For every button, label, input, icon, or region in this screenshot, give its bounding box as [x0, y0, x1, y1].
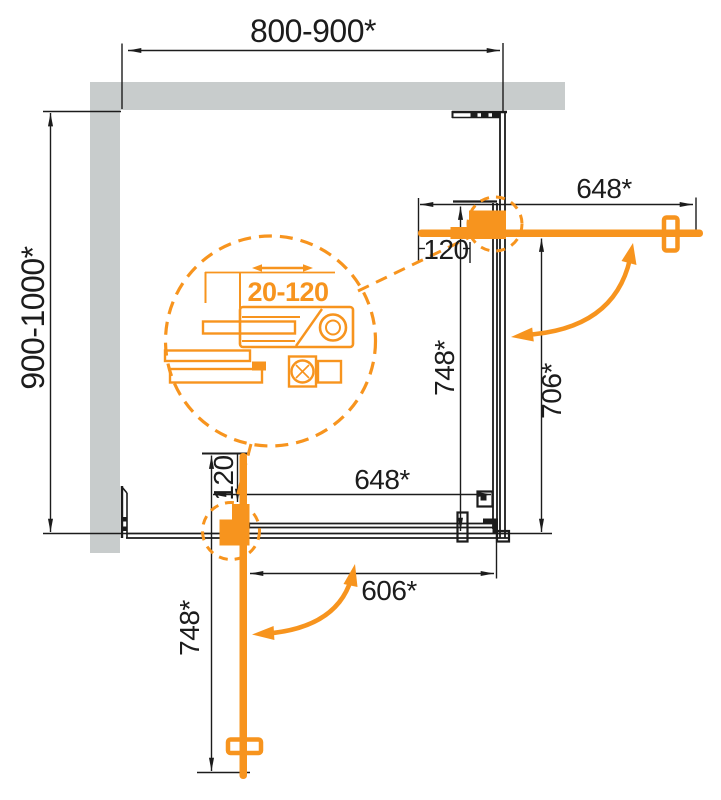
- label-width-top: 800-900*: [250, 13, 376, 49]
- wall-top: [92, 82, 565, 110]
- swing-arrow-icon-top: [511, 243, 637, 342]
- label-panel-bottom-left: 748*: [174, 600, 205, 656]
- label-depth-left: 900-1000*: [15, 246, 51, 389]
- label-door-top: 648*: [576, 173, 632, 204]
- label-hinge-offset-bottom: 120: [208, 455, 239, 500]
- glass-panel-bottom: [126, 523, 508, 539]
- wall-profile-bottom-left: [122, 486, 128, 538]
- installation-drawing: 800-900* 900-1000* 648* 120 748* 706* 64…: [0, 0, 721, 800]
- label-opening-bottom: 606*: [361, 575, 417, 606]
- label-adjustment-range: 20-120: [247, 277, 328, 307]
- wall-profile-top-right: [452, 111, 507, 118]
- label-opening-right: 706*: [536, 363, 567, 419]
- swing-arrow-icon-bottom: [252, 564, 358, 640]
- label-panel-right: 748*: [429, 340, 460, 396]
- wall-left: [90, 82, 120, 553]
- label-door-bottom: 648*: [354, 464, 410, 495]
- label-hinge-offset-top: 120: [423, 234, 468, 265]
